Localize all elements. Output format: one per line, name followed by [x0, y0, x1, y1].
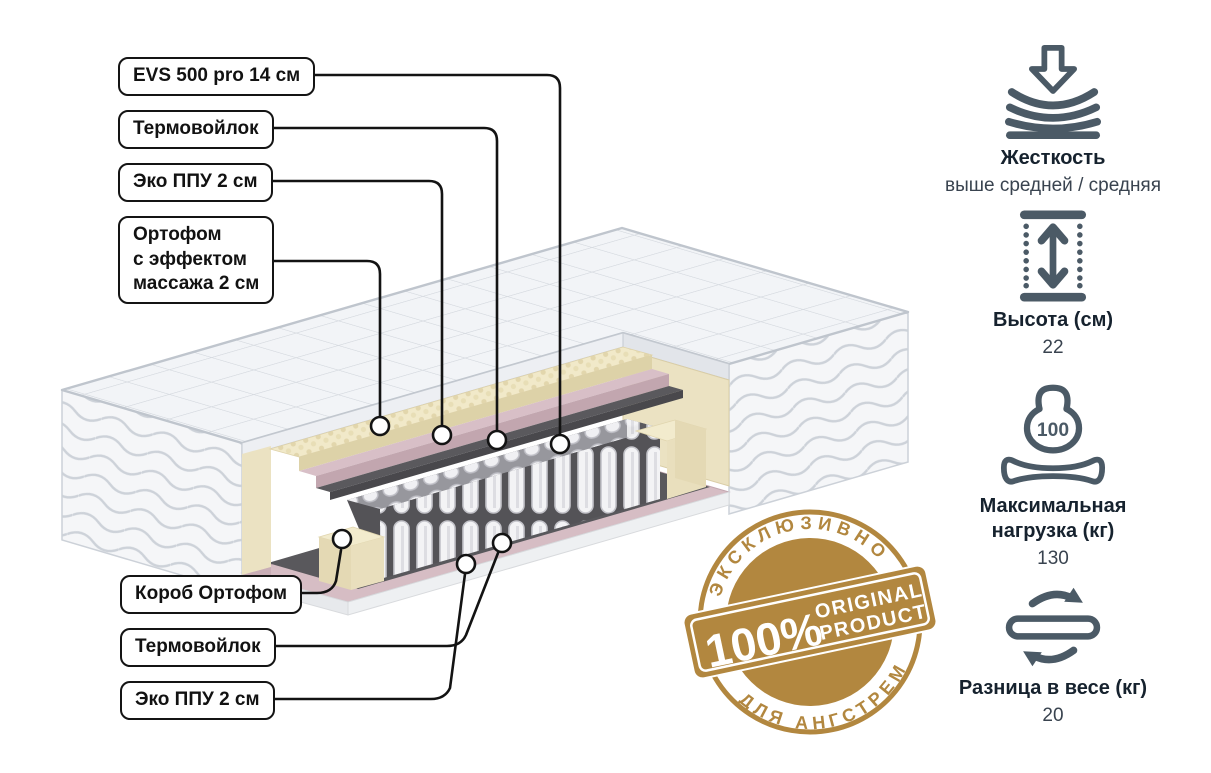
product-infographic: ЭКСКЛЮЗИВНО ДЛЯ АНГСТРЕМ 100% ORIGINAL P…	[0, 0, 1211, 773]
label-eco-foam-bottom: Эко ППУ 2 см	[120, 681, 275, 720]
flip-weight-icon	[1003, 584, 1103, 670]
dot-eco-foam-top	[433, 426, 451, 444]
dot-felt-bottom	[493, 534, 511, 552]
label-massage-foam: Ортофом с эффектом массажа 2 см	[118, 216, 274, 304]
spec-max-load: 100 Максимальная нагрузка (кг) 130	[923, 380, 1183, 572]
label-eco-foam-top: Эко ППУ 2 см	[118, 163, 273, 202]
height-icon	[1018, 210, 1088, 302]
authenticity-badge: ЭКСКЛЮЗИВНО ДЛЯ АНГСТРЕМ 100% ORIGINAL P…	[666, 489, 955, 757]
dot-felt-top	[488, 431, 506, 449]
label-foam-box: Короб Ортофом	[120, 575, 302, 614]
label-evs-500: EVS 500 pro 14 см	[118, 57, 315, 96]
spec-max-load-value: 130	[923, 547, 1183, 572]
spec-weight-difference: Разница в весе (кг) 20	[923, 584, 1183, 729]
cut-wall-cream	[242, 446, 271, 575]
max-load-icon: 100	[1000, 380, 1106, 488]
dot-foam-box	[333, 530, 351, 548]
dot-massage-foam	[371, 417, 389, 435]
spec-firmness-title: Жесткость	[923, 146, 1183, 171]
dot-evs-500	[551, 435, 569, 453]
spec-firmness-value: выше средней / средняя	[923, 174, 1183, 199]
label-felt-top: Термовойлок	[118, 110, 274, 149]
spec-height-title: Высота (см)	[923, 308, 1183, 333]
dot-eco-foam-bottom	[457, 555, 475, 573]
spec-height-value: 22	[923, 336, 1183, 361]
label-felt-bottom: Термовойлок	[120, 628, 276, 667]
firmness-icon	[1000, 44, 1106, 140]
spec-firmness: Жесткость выше средней / средняя	[923, 44, 1183, 199]
spec-weight-difference-value: 20	[923, 704, 1183, 729]
spec-weight-difference-title: Разница в весе (кг)	[923, 676, 1183, 701]
spec-max-load-title: Максимальная нагрузка (кг)	[947, 494, 1159, 544]
spec-height: Высота (см) 22	[923, 210, 1183, 361]
max-load-icon-number: 100	[1037, 420, 1069, 441]
